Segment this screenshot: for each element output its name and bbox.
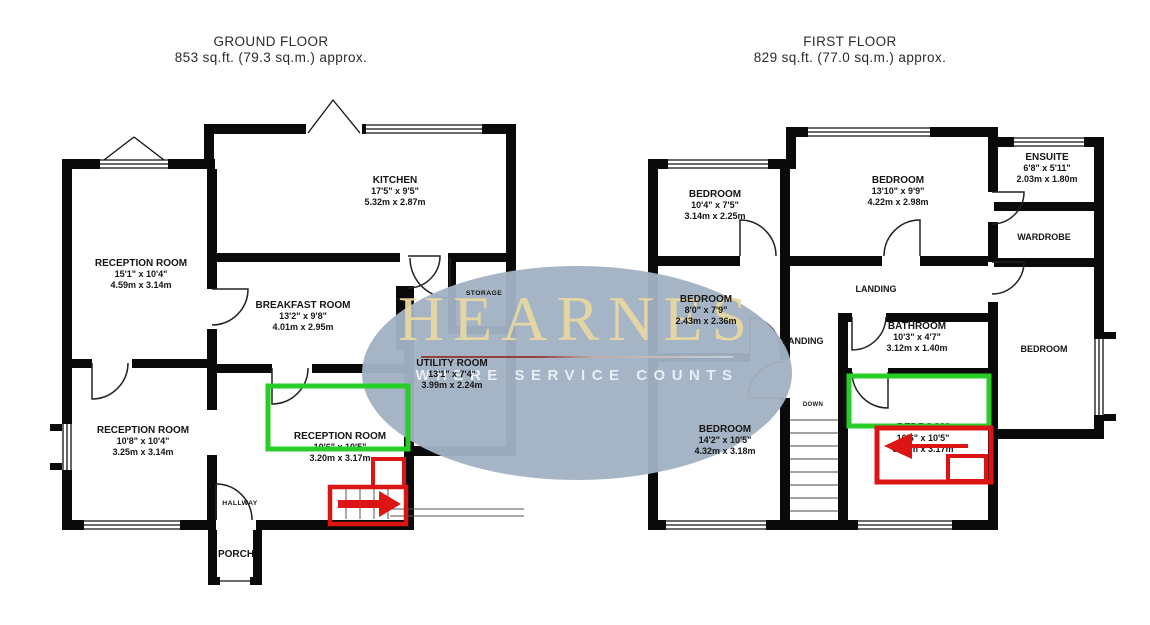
red-arrow-right bbox=[338, 491, 401, 517]
first-floor-stairs bbox=[790, 420, 838, 511]
floorplan-page: HEARNES WHERE SERVICE COUNTS GROUND FLOO… bbox=[0, 0, 1150, 625]
room-label-hallway: HALLWAY bbox=[222, 498, 257, 509]
ground-floor-stairs bbox=[346, 488, 524, 519]
room-label-bedroom-mid: BEDROOM 8'0" x 7'9" 2.43m x 2.36m bbox=[675, 294, 736, 326]
label-stairs-down: DOWN bbox=[803, 400, 823, 411]
room-label-porch: PORCH bbox=[218, 549, 254, 560]
room-label-landing: LANDING bbox=[856, 284, 897, 295]
room-label-reception-side: RECEPTION ROOM 10'8" x 10'4" 3.25m x 3.1… bbox=[97, 425, 189, 457]
room-label-breakfast-room: BREAKFAST ROOM 13'2" x 9'8" 4.01m x 2.95… bbox=[256, 300, 351, 332]
room-label-bedroom-rear: BEDROOM 10'6" x 10'5" 3.20m x 3.17m bbox=[892, 422, 953, 454]
room-label-landing-lower: LANDING bbox=[783, 336, 824, 347]
room-label-reception-front: RECEPTION ROOM 15'1" x 10'4" 4.59m x 3.1… bbox=[95, 258, 187, 290]
first-floor-area: 829 sq.ft. (77.0 sq.m.) approx. bbox=[754, 50, 947, 66]
room-label-ensuite: ENSUITE 6'8" x 5'11" 2.03m x 1.80m bbox=[1016, 152, 1077, 184]
red-small-box-first bbox=[948, 456, 986, 481]
green-highlight-box-first bbox=[849, 376, 989, 426]
ground-floor-title: GROUND FLOOR 853 sq.ft. (79.3 sq.m.) app… bbox=[175, 34, 368, 66]
room-label-bedroom-rear-left: BEDROOM 14'2" x 10'5" 4.32m x 3.18m bbox=[694, 424, 755, 456]
room-label-bathroom: BATHROOM 10'3" x 4'7" 3.12m x 1.40m bbox=[886, 321, 947, 353]
room-label-reception-rear: RECEPTION ROOM 10'6" x 10'5" 3.20m x 3.1… bbox=[294, 431, 386, 463]
room-label-utility-room: UTILITY ROOM 13'1" x 7'4" 3.99m x 2.24m bbox=[416, 358, 487, 390]
first-floor-title: FIRST FLOOR 829 sq.ft. (77.0 sq.m.) appr… bbox=[754, 34, 947, 66]
room-label-kitchen: KITCHEN 17'5" x 9'5" 5.32m x 2.87m bbox=[364, 175, 425, 207]
room-label-storage: STORAGE bbox=[466, 288, 502, 299]
red-box-ground bbox=[330, 487, 406, 524]
room-label-bedroom-front: BEDROOM 13'10" x 9'9" 4.22m x 2.98m bbox=[867, 175, 928, 207]
room-label-wardrobe: WARDROBE bbox=[1017, 232, 1071, 243]
room-label-bedroom-right: BEDROOM bbox=[1021, 344, 1068, 355]
room-label-bedroom-front-left: BEDROOM 10'4" x 7'5" 3.14m x 2.25m bbox=[684, 189, 745, 221]
ground-floor-area: 853 sq.ft. (79.3 sq.m.) approx. bbox=[175, 50, 368, 66]
